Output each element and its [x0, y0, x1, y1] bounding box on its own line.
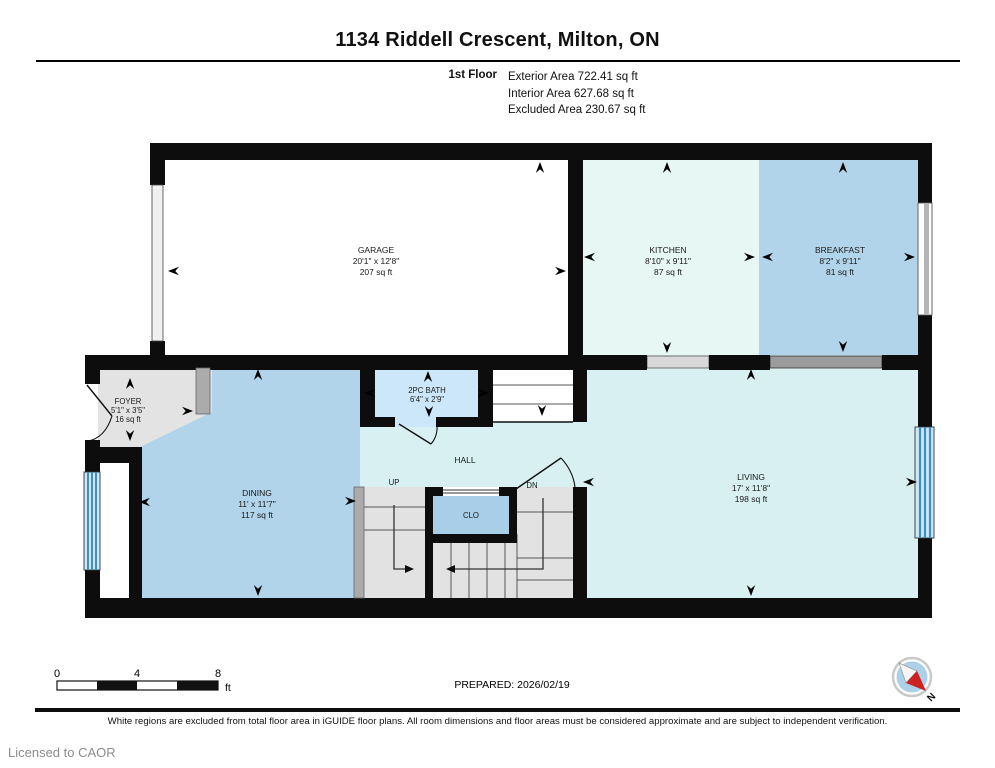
footer-divider: [35, 708, 960, 712]
garage-door: [152, 185, 163, 341]
living-dims: 17' x 11'8": [732, 483, 770, 493]
closet-label: CLO: [463, 511, 479, 520]
living-label: LIVING: [737, 472, 765, 482]
bath-dims: 6'4" x 2'9": [410, 395, 444, 404]
living-window: [915, 427, 934, 538]
breakfast-dims: 8'2" x 9'11": [819, 256, 860, 266]
stairs-down-label: DN: [526, 481, 537, 490]
excluded-nook: [100, 463, 129, 598]
dining-area: 117 sq ft: [241, 510, 274, 520]
bath-label: 2PC BATH: [408, 386, 446, 395]
living-area: 198 sq ft: [735, 494, 768, 504]
floor-plan-page: 1134 Riddell Crescent, Milton, ON 1st Fl…: [0, 0, 995, 768]
breakfast-area: 81 sq ft: [826, 267, 855, 277]
garage-area: 207 sq ft: [360, 267, 393, 277]
kitchen-label: KITCHEN: [649, 245, 686, 255]
breakfast-label: BREAKFAST: [815, 245, 865, 255]
dining-label: DINING: [242, 488, 272, 498]
disclaimer-text: White regions are excluded from total fl…: [0, 716, 995, 727]
floor-plan-svg: GARAGE 20'1" x 12'8" 207 sq ft KITCHEN 8…: [0, 0, 995, 768]
kitchen-dims: 8'10" x 9'11": [645, 256, 691, 266]
scale-tick-4: 4: [134, 668, 140, 680]
kitchen-area: 87 sq ft: [654, 267, 683, 277]
scale-bar: 0 4 8 ft: [54, 668, 231, 694]
dining-dims: 11' x 11'7": [238, 499, 276, 509]
compass-icon: N: [893, 658, 938, 704]
foyer-label: FOYER: [115, 397, 142, 406]
garage-dims: 20'1" x 12'8": [353, 256, 400, 266]
garage-label: GARAGE: [358, 245, 395, 255]
license-text: Licensed to CAOR: [8, 745, 116, 760]
breakfast-window: [918, 203, 932, 315]
stairs-up-label: UP: [389, 478, 400, 487]
foyer-dims: 5'1" x 3'5": [111, 406, 145, 415]
dining-window: [84, 472, 100, 570]
scale-tick-8: 8: [215, 668, 221, 680]
foyer-area: 16 sq ft: [115, 415, 141, 424]
compass-north-label: N: [925, 691, 938, 704]
prepared-date: PREPARED: 2026/02/19: [454, 679, 570, 691]
scale-unit: ft: [225, 682, 231, 694]
scale-tick-0: 0: [54, 668, 60, 680]
hall-label: HALL: [454, 455, 476, 465]
